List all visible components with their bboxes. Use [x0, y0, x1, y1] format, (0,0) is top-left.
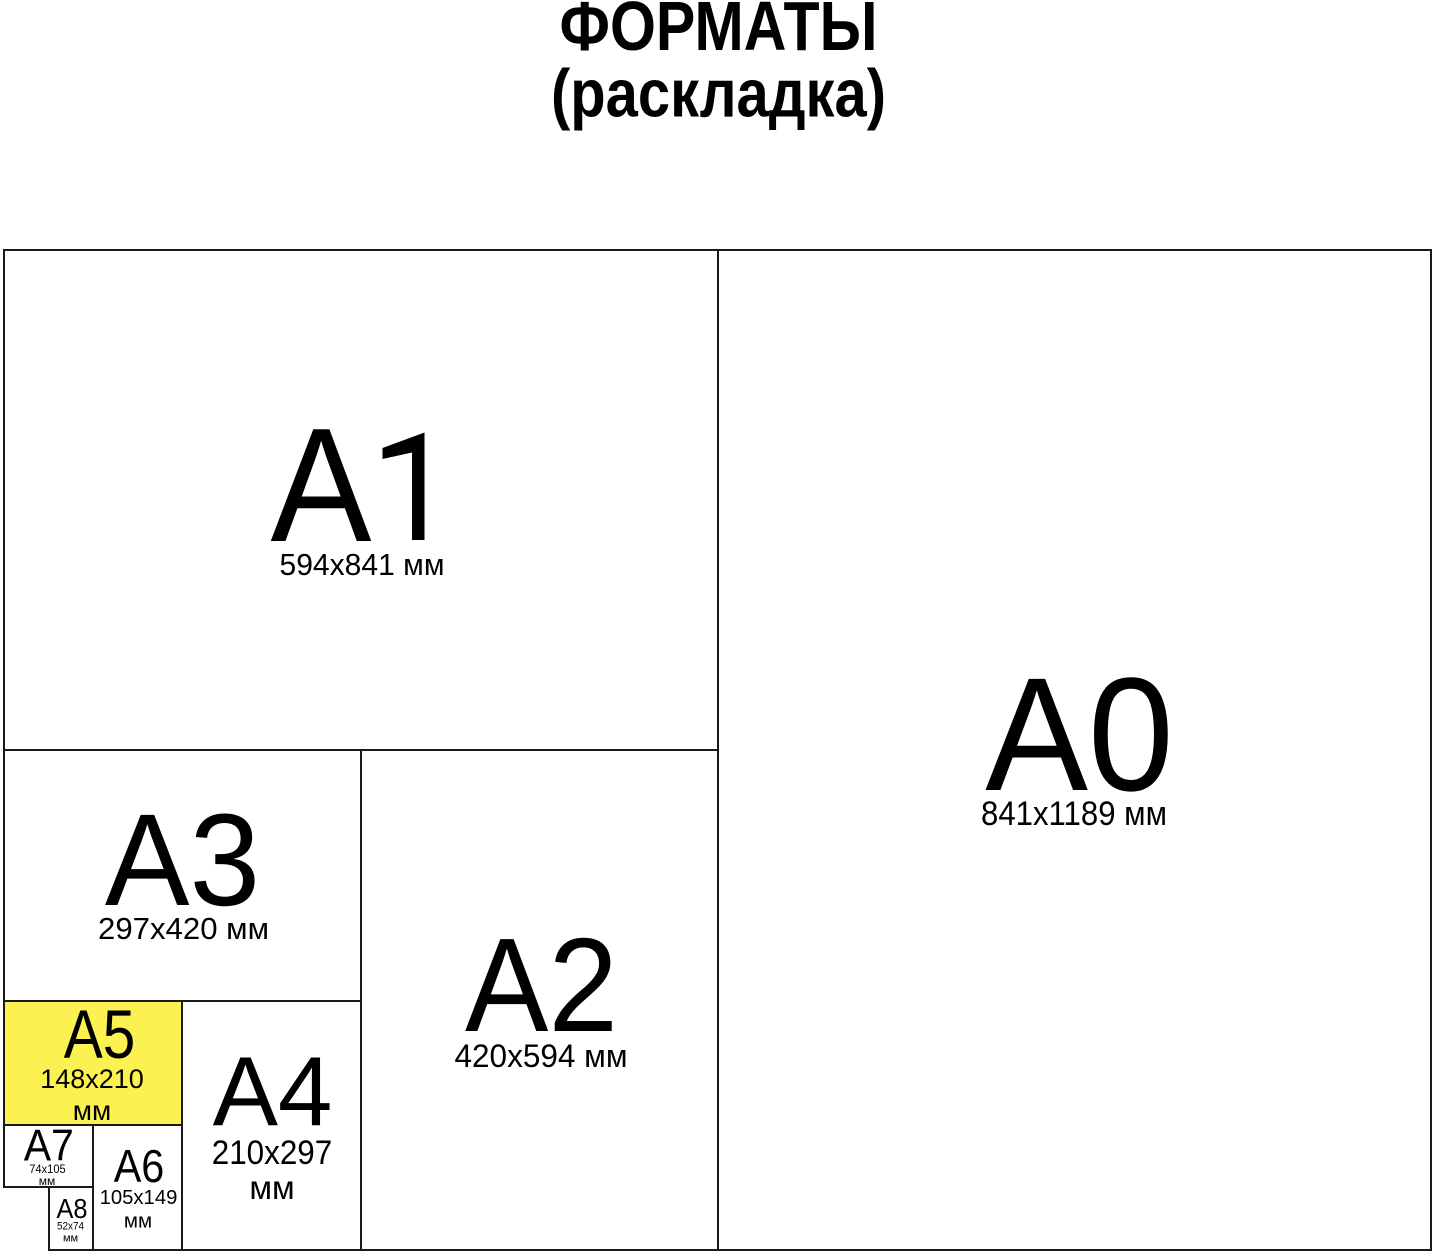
- svg-text:A4: A4: [213, 1037, 333, 1147]
- svg-text:148x210: 148x210: [40, 1064, 144, 1094]
- svg-text:мм: мм: [63, 1233, 78, 1245]
- svg-text:мм: мм: [73, 1095, 112, 1126]
- svg-text:52x74: 52x74: [57, 1221, 84, 1233]
- svg-text:A6: A6: [114, 1140, 165, 1192]
- svg-text:мм: мм: [124, 1210, 152, 1233]
- svg-text:210x297: 210x297: [212, 1134, 333, 1172]
- svg-text:A8: A8: [57, 1193, 88, 1224]
- svg-text:A5: A5: [64, 996, 136, 1073]
- svg-text:(раскладка): (раскладка): [551, 56, 886, 132]
- svg-text:420x594 мм: 420x594 мм: [455, 1038, 628, 1074]
- svg-text:594x841 мм: 594x841 мм: [280, 547, 445, 582]
- svg-text:297x420 мм: 297x420 мм: [98, 911, 269, 946]
- svg-text:мм: мм: [249, 1169, 294, 1206]
- svg-text:мм: мм: [39, 1174, 56, 1188]
- svg-text:105x149: 105x149: [100, 1187, 178, 1209]
- svg-text:841x1189 мм: 841x1189 мм: [981, 795, 1167, 833]
